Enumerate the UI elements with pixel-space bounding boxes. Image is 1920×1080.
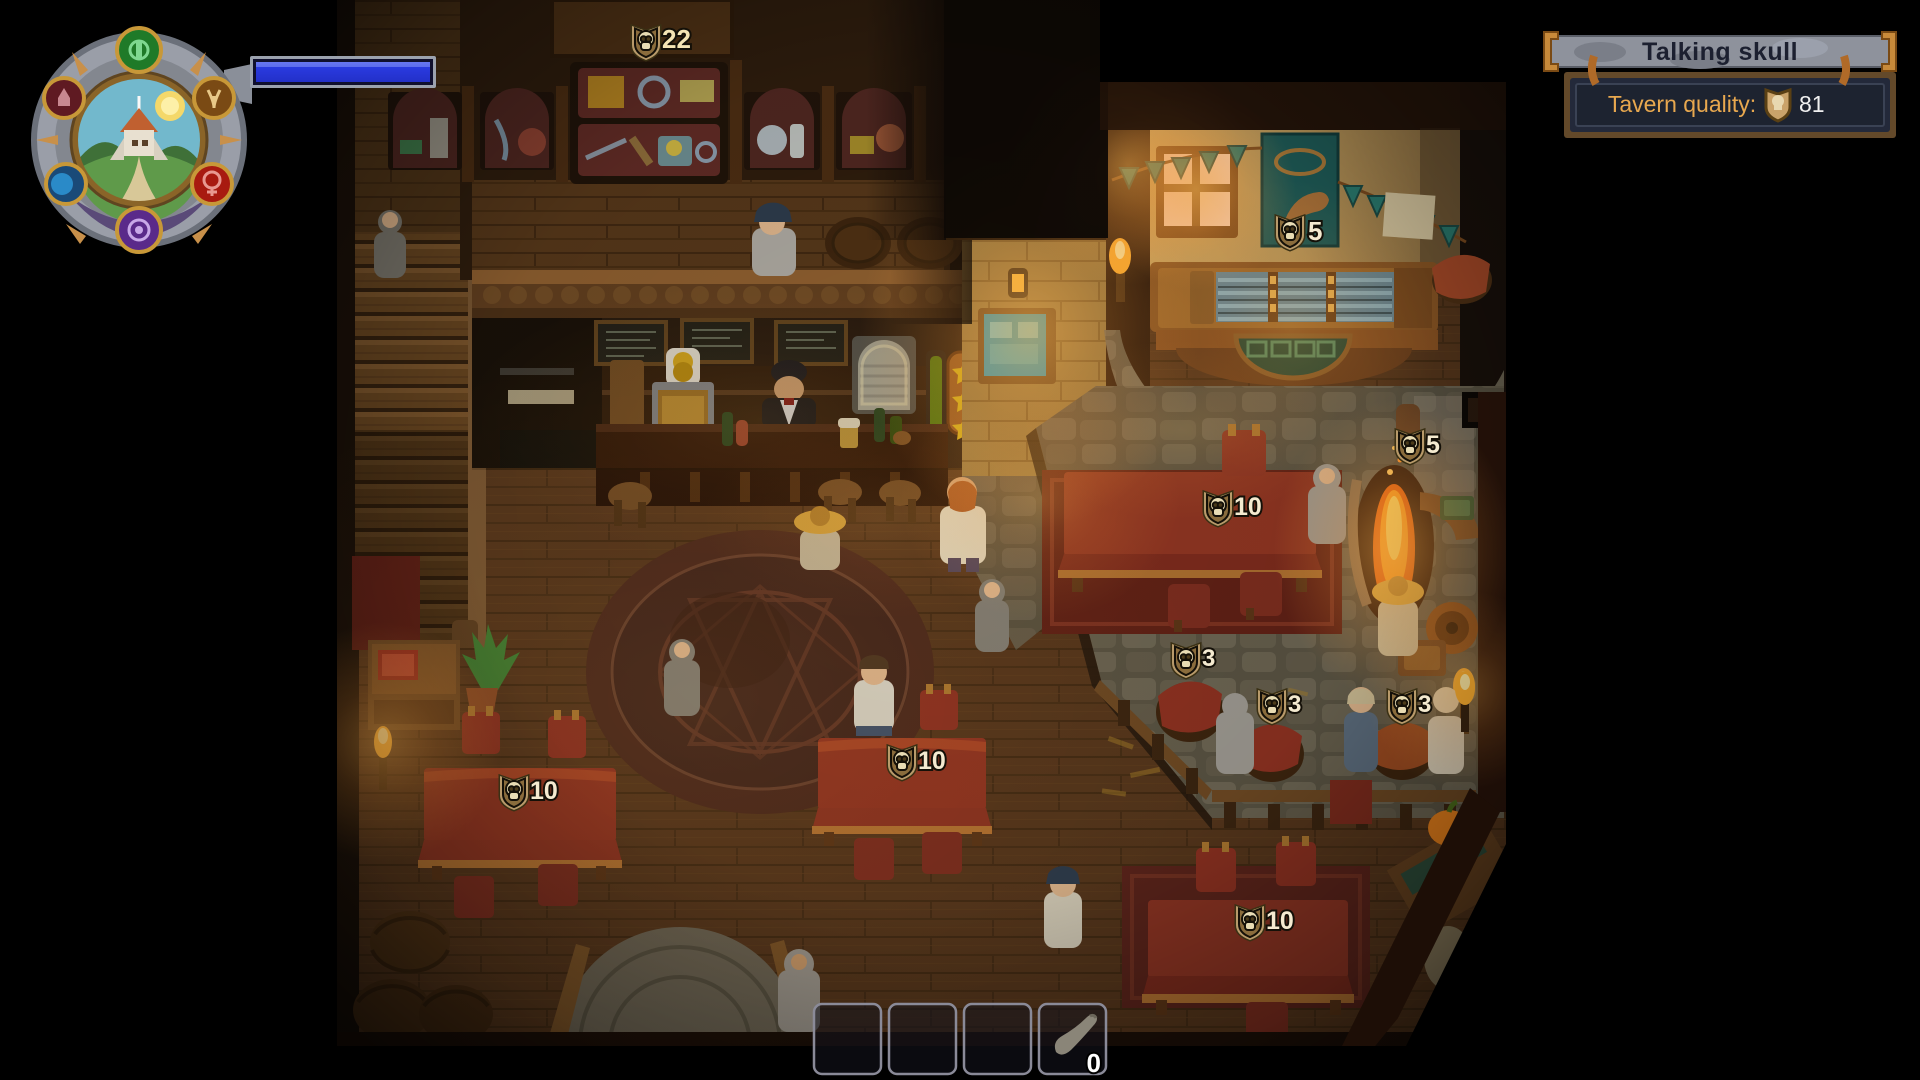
svg-text:3: 3 xyxy=(1418,691,1431,718)
svg-text:81: 81 xyxy=(1799,91,1825,117)
svg-text:3: 3 xyxy=(1202,645,1215,672)
svg-text:10: 10 xyxy=(1266,907,1294,935)
svg-text:Tavern quality:: Tavern quality: xyxy=(1608,91,1756,117)
svg-text:5: 5 xyxy=(1308,216,1322,246)
svg-text:10: 10 xyxy=(1234,493,1262,521)
svg-text:5: 5 xyxy=(1426,431,1440,459)
svg-text:10: 10 xyxy=(918,747,946,775)
svg-text:3: 3 xyxy=(1288,691,1301,718)
svg-text:0: 0 xyxy=(1087,1048,1101,1078)
svg-text:Talking skull: Talking skull xyxy=(1642,38,1798,66)
svg-text:10: 10 xyxy=(530,777,558,805)
svg-text:22: 22 xyxy=(662,24,691,54)
